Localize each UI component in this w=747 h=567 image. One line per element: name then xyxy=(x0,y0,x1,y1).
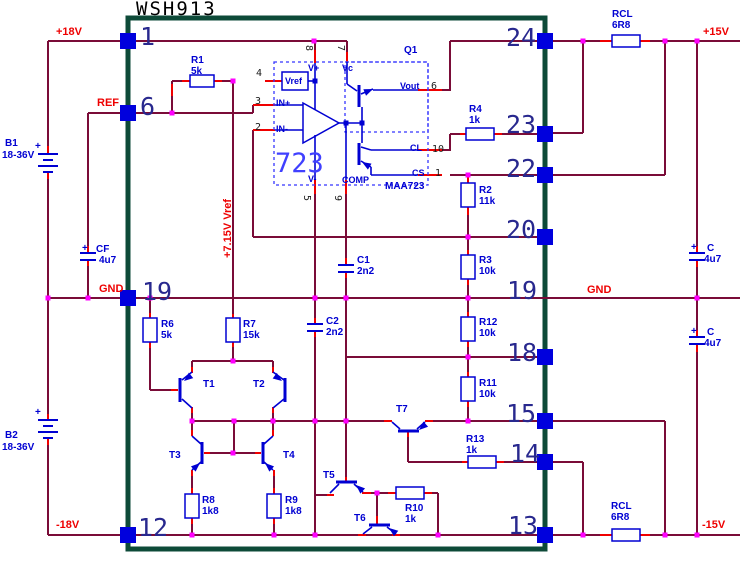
label-ic-pins-inn: IN- xyxy=(276,124,288,134)
label-rails-ref: REF xyxy=(97,97,119,109)
label-rails-n15v: -15V xyxy=(702,519,725,531)
label-pins-right-7: 14 xyxy=(510,439,540,468)
junction-dot xyxy=(86,296,91,301)
label-capacitors-plus: + xyxy=(691,242,697,253)
pin-square-20 xyxy=(537,229,553,245)
label-resistors-r10-name: R10 xyxy=(405,503,423,514)
label-ic-nums-n7: 7 xyxy=(335,45,346,51)
label-resistors-r8-name: R8 xyxy=(202,495,215,506)
component-plate xyxy=(689,259,705,261)
pin-square-18 xyxy=(537,349,553,365)
ic-junction-dot xyxy=(344,121,349,126)
pin-square-15 xyxy=(537,413,553,429)
resistor-body xyxy=(466,128,494,140)
resistor-body xyxy=(185,494,199,518)
resistor-body xyxy=(396,487,424,499)
label-capacitors-c_top-value: 4u7 xyxy=(704,254,721,265)
label-resistors-r3-value: 10k xyxy=(479,266,496,277)
label-ic-nums-n3: 3 xyxy=(255,96,261,107)
junction-dot xyxy=(344,419,349,424)
pin-square-22 xyxy=(537,167,553,183)
label-resistors-r6-value: 5k xyxy=(161,330,172,341)
label-resistors-r1-value: 5k xyxy=(191,66,202,77)
label-pins-left-1: 6 xyxy=(140,92,155,121)
junction-dot xyxy=(695,533,700,538)
resistor-body xyxy=(461,183,475,207)
junction-dot xyxy=(272,533,277,538)
label-rails-vref_rail: +7.15V Vref xyxy=(222,199,234,258)
resistor-body xyxy=(143,318,157,342)
blue-wire xyxy=(182,399,192,408)
label-capacitors-c_bottom-name: C xyxy=(707,327,714,338)
label-ic-pins-vplus: V+ xyxy=(308,63,319,73)
junction-dot xyxy=(375,491,380,496)
label-resistors-r1-name: R1 xyxy=(191,55,204,66)
label-ic-pins-inp: IN+ xyxy=(276,98,290,108)
junction-dot xyxy=(581,533,586,538)
label-resistors-r2-value: 11k xyxy=(479,196,495,207)
resistor-body xyxy=(226,318,240,342)
junction-dot xyxy=(663,39,668,44)
label-rails-p18v: +18V xyxy=(56,26,82,38)
component-plate xyxy=(38,431,58,433)
label-transistors-t5: T5 xyxy=(323,470,335,481)
label-capacitors-c2-name: C2 xyxy=(326,316,339,327)
blue-wire xyxy=(192,436,201,444)
label-capacitors-cf-value: 4u7 xyxy=(99,255,116,266)
component-plate xyxy=(43,425,53,427)
label-ic-nums-n5: 5 xyxy=(301,195,312,201)
label-batteries-b1-name: B1 xyxy=(5,138,18,149)
junction-dot xyxy=(312,39,317,44)
label-capacitors-plus: + xyxy=(35,141,41,152)
junction-dot xyxy=(313,419,318,424)
label-capacitors-plus: + xyxy=(35,407,41,418)
label-resistors-r13-value: 1k xyxy=(466,445,477,456)
label-transistors-q1: Q1 xyxy=(404,45,417,56)
junction-dot xyxy=(190,533,195,538)
component-plate xyxy=(338,271,354,273)
label-pins-right-6: 15 xyxy=(506,399,536,428)
label-resistors-rcl_top-name: RCL xyxy=(612,9,633,20)
junction-dot xyxy=(466,355,471,360)
opamp-triangle xyxy=(303,103,339,143)
component-plate xyxy=(80,259,96,261)
label-batteries-b1-value: 18-36V xyxy=(2,150,34,161)
label-ic-nums-n4: 4 xyxy=(256,68,262,79)
label-resistors-r8-value: 1k8 xyxy=(202,506,219,517)
junction-dot xyxy=(313,296,318,301)
junction-dot xyxy=(46,296,51,301)
component-plate xyxy=(43,159,53,161)
label-ic-pins-vout: Vout xyxy=(400,81,419,91)
pin-square-13 xyxy=(537,527,553,543)
label-ic-pins-cl: CL xyxy=(410,143,422,153)
q1-dashed-box xyxy=(345,62,428,132)
label-ic-pins-vminus: V- xyxy=(308,174,317,184)
label-capacitors-c2-value: 2n2 xyxy=(326,327,343,338)
ic-junction-dot xyxy=(360,121,365,126)
label-capacitors-plus: + xyxy=(82,243,88,254)
blue-wire xyxy=(264,436,273,444)
label-pins-left-3: 12 xyxy=(138,513,168,542)
label-resistors-rcl_bottom-value: 6R8 xyxy=(611,512,629,523)
label-ic-pins-vc: Vc xyxy=(342,63,353,73)
pin-square-1 xyxy=(120,33,136,49)
label-resistors-r2-name: R2 xyxy=(479,185,492,196)
label-transistors-t4: T4 xyxy=(283,450,295,461)
blue-wire xyxy=(392,422,400,429)
label-capacitors-cf-name: CF xyxy=(96,244,109,255)
label-ic-pins-vref: Vref xyxy=(285,76,302,86)
label-resistors-r12-value: 10k xyxy=(479,328,496,339)
component-plate xyxy=(38,419,58,421)
label-pins-right-8: 13 xyxy=(508,511,538,540)
pin-square-12 xyxy=(120,527,136,543)
label-resistors-r3-name: R3 xyxy=(479,255,492,266)
junction-dot xyxy=(313,533,318,538)
label-title: WSH913 xyxy=(136,0,217,20)
blue-wire xyxy=(273,399,284,408)
label-ic-nums-n1: 1 xyxy=(435,168,441,179)
junction-dot xyxy=(695,39,700,44)
label-ic-pins-cs: CS xyxy=(412,168,425,178)
label-rails-n18v: -18V xyxy=(56,519,79,531)
component-plate xyxy=(38,165,58,167)
junction-dot xyxy=(190,419,195,424)
label-rails-gnd_right: GND xyxy=(587,284,611,296)
component-plate xyxy=(43,171,53,173)
junction-dot xyxy=(466,235,471,240)
emitter-arrow-icon xyxy=(363,89,373,96)
label-rails-p15v: +15V xyxy=(703,26,729,38)
junction-dot xyxy=(663,533,668,538)
label-ic-part: MAA723 xyxy=(385,181,424,192)
junction-dot xyxy=(695,296,700,301)
blue-wire xyxy=(361,147,371,150)
blue-wire xyxy=(330,484,339,493)
resistor-body xyxy=(468,456,496,468)
junction-dot xyxy=(271,419,276,424)
label-resistors-r7-name: R7 xyxy=(243,319,256,330)
label-pins-right-2: 22 xyxy=(506,154,536,183)
label-resistors-rcl_top-value: 6R8 xyxy=(612,20,630,31)
junction-dot xyxy=(466,419,471,424)
schematic-canvas: WSH913161912242322201918151413+18VREFGND… xyxy=(0,0,747,567)
junction-dot xyxy=(436,533,441,538)
pin-square-23 xyxy=(537,126,553,142)
junction-dot xyxy=(466,296,471,301)
label-resistors-r9-value: 1k8 xyxy=(285,506,302,517)
resistor-body xyxy=(461,255,475,279)
label-pins-right-1: 23 xyxy=(506,110,536,139)
label-capacitors-c_top-name: C xyxy=(707,243,714,254)
label-capacitors-c_bottom-value: 4u7 xyxy=(704,338,721,349)
component-plate xyxy=(43,437,53,439)
junction-dot xyxy=(581,39,586,44)
label-pins-right-5: 18 xyxy=(507,338,537,367)
label-ic-nums-n10: 10 xyxy=(432,144,444,155)
label-capacitors-c1-value: 2n2 xyxy=(357,266,374,277)
ic-junction-dot xyxy=(313,79,318,84)
label-transistors-t7: T7 xyxy=(396,404,408,415)
resistor-body xyxy=(612,529,640,541)
emitter-arrow-icon xyxy=(362,162,372,170)
junction-dot xyxy=(344,296,349,301)
component-plate xyxy=(689,343,705,345)
label-resistors-r4-name: R4 xyxy=(469,104,482,115)
label-pins-left-0: 1 xyxy=(140,22,155,51)
label-pins-right-3: 20 xyxy=(506,215,536,244)
pin-square-6 xyxy=(120,105,136,121)
label-ic-pins-comp: COMP xyxy=(342,175,369,185)
label-batteries-b2-value: 18-36V xyxy=(2,442,34,453)
label-transistors-t1: T1 xyxy=(203,379,215,390)
label-resistors-rcl_bottom-name: RCL xyxy=(611,501,632,512)
junction-dot xyxy=(170,111,175,116)
blue-wire xyxy=(363,527,372,534)
label-transistors-t6: T6 xyxy=(354,513,366,524)
label-transistors-t2: T2 xyxy=(253,379,265,390)
label-pins-left-2: 19 xyxy=(142,277,172,306)
junction-dot xyxy=(231,451,236,456)
label-transistors-t3: T3 xyxy=(169,450,181,461)
label-resistors-r11-value: 10k xyxy=(479,389,496,400)
label-capacitors-plus: + xyxy=(691,326,697,337)
label-resistors-r13-name: R13 xyxy=(466,434,484,445)
label-batteries-b2-name: B2 xyxy=(5,430,18,441)
label-pins-right-0: 24 xyxy=(506,23,536,52)
label-resistors-r11-name: R11 xyxy=(479,378,497,389)
label-ic-nums-n2: 2 xyxy=(255,122,261,133)
label-pins-right-4: 19 xyxy=(507,276,537,305)
pin-square-24 xyxy=(537,33,553,49)
label-resistors-r7-value: 15k xyxy=(243,330,260,341)
junction-dot xyxy=(231,79,236,84)
junction-dot xyxy=(231,359,236,364)
label-resistors-r9-name: R9 xyxy=(285,495,298,506)
component-plate xyxy=(307,330,323,332)
label-rails-gnd_left: GND xyxy=(99,283,123,295)
blue-wire xyxy=(347,84,357,91)
resistor-body xyxy=(461,317,475,341)
resistor-body xyxy=(612,35,640,47)
label-ic-nums-n9: 9 xyxy=(332,195,343,201)
label-resistors-r6-name: R6 xyxy=(161,319,174,330)
component-plate xyxy=(338,264,354,266)
label-resistors-r10-value: 1k xyxy=(405,514,416,525)
label-resistors-r12-name: R12 xyxy=(479,317,497,328)
resistor-body xyxy=(267,494,281,518)
junction-dot xyxy=(232,419,237,424)
label-ic-nums-n8: 8 xyxy=(303,45,314,51)
resistor-body xyxy=(461,377,475,401)
label-resistors-r4-value: 1k xyxy=(469,115,480,126)
module-border xyxy=(128,18,545,549)
junction-dot xyxy=(466,173,471,178)
label-capacitors-c1-name: C1 xyxy=(357,255,370,266)
label-ic-nums-n6: 6 xyxy=(431,81,437,92)
component-plate xyxy=(38,153,58,155)
component-plate xyxy=(307,323,323,325)
